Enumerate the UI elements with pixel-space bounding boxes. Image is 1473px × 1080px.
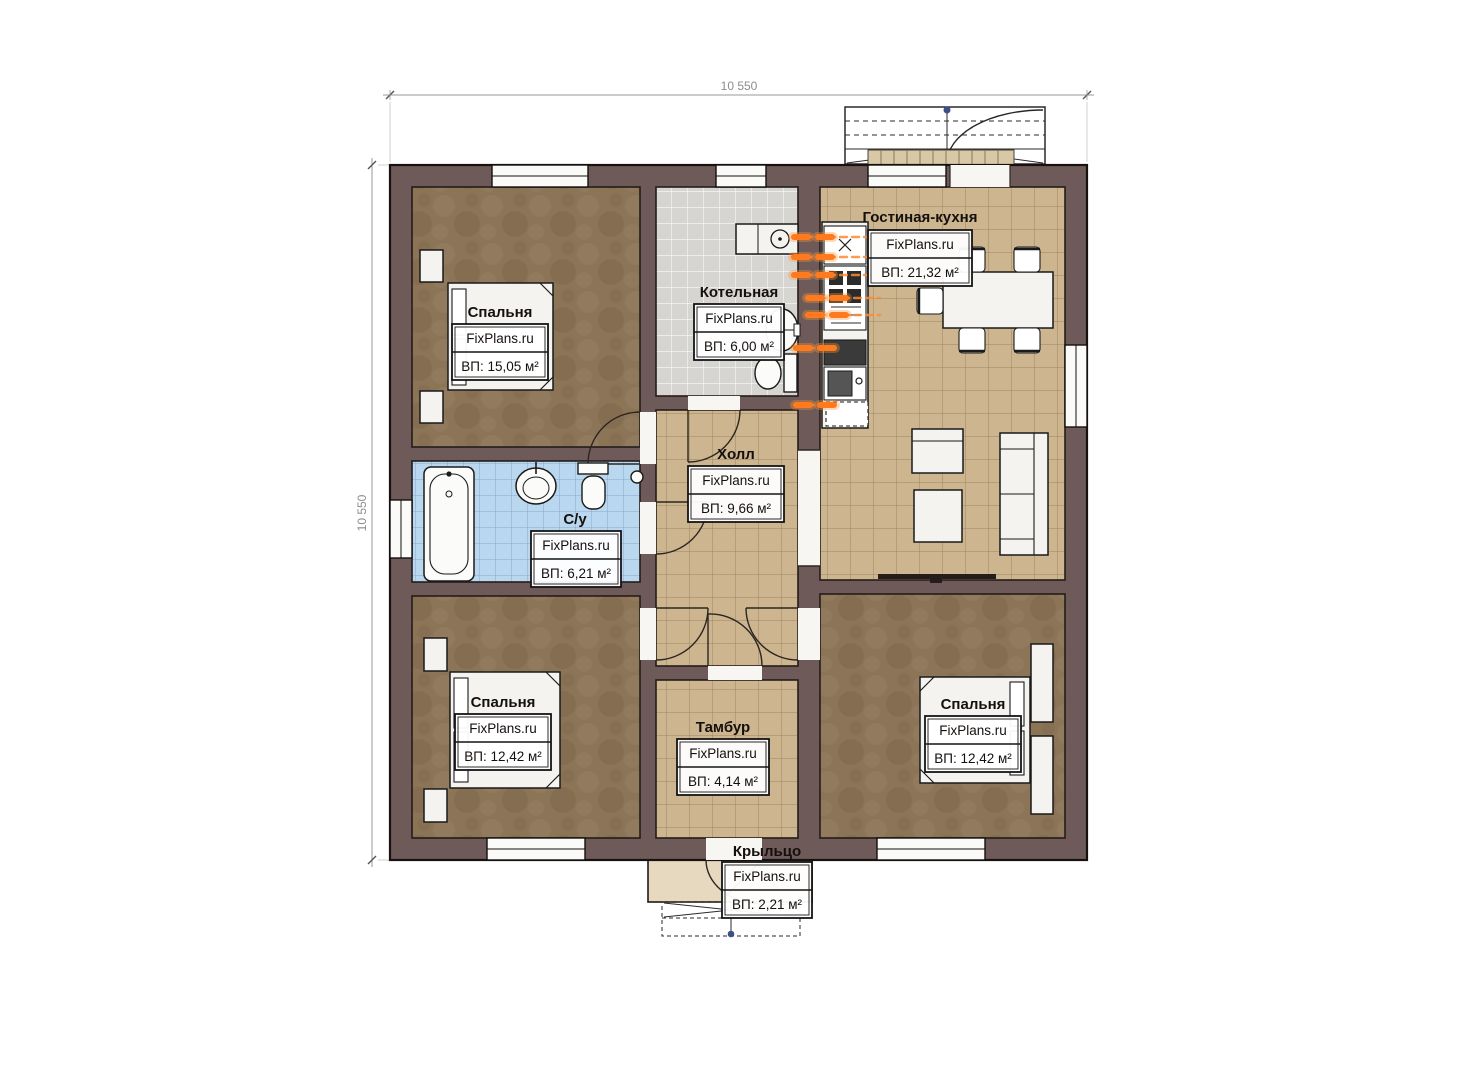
nightstand-icon (1031, 736, 1053, 814)
room-area: ВП: 4,14 м² (688, 774, 759, 789)
room-name: С/у (563, 511, 587, 528)
room-area: ВП: 6,21 м² (541, 566, 612, 581)
stair-direction-dot (944, 107, 951, 114)
watermark: FixPlans.ru (886, 237, 954, 252)
nightstand-icon (424, 789, 447, 822)
label-boiler-room: Котельная FixPlans.ru ВП: 6,00 м² (694, 284, 784, 360)
watermark: FixPlans.ru (733, 869, 801, 884)
chair-icon (1014, 328, 1040, 353)
nightstand-icon (420, 391, 443, 423)
window (492, 165, 588, 187)
watermark: FixPlans.ru (542, 538, 610, 553)
watermark: FixPlans.ru (469, 721, 537, 736)
back-porch-stairs (845, 107, 1045, 166)
nightstand-icon (420, 250, 443, 282)
dimension-top-label: 10 550 (721, 79, 758, 93)
room-area: ВП: 12,42 м² (464, 749, 542, 764)
door-back-entrance (950, 165, 1010, 187)
watermark: FixPlans.ru (689, 746, 757, 761)
watermark: FixPlans.ru (466, 331, 534, 346)
back-entry-steps (868, 150, 1014, 165)
nightstand-icon (1031, 644, 1053, 722)
stair-direction-dot (728, 931, 735, 938)
room-name: Спальня (468, 304, 533, 321)
watermark: FixPlans.ru (939, 723, 1007, 738)
window (877, 838, 985, 860)
window (390, 500, 412, 558)
nightstand-icon (424, 638, 447, 671)
window (487, 838, 585, 860)
dimension-left: 10 550 (355, 158, 390, 867)
towel-ring-icon (631, 471, 643, 483)
watermark: FixPlans.ru (705, 311, 773, 326)
room-area: ВП: 6,00 м² (704, 339, 775, 354)
label-porch: Крыльцо FixPlans.ru ВП: 2,21 м² (722, 843, 812, 918)
chair-icon (917, 288, 943, 314)
floor-plan-page: 10 550 10 550 (0, 0, 1473, 1080)
coffee-table-icon (914, 490, 962, 542)
opening-hall-living (798, 450, 820, 566)
window (868, 165, 946, 187)
watermark: FixPlans.ru (702, 473, 770, 488)
dimension-left-label: 10 550 (355, 494, 369, 531)
armchair-icon (912, 429, 963, 473)
toilet-icon (578, 463, 608, 509)
room-name: Тамбур (696, 719, 750, 736)
label-living-kitchen: Гостиная-кухня FixPlans.ru ВП: 21,32 м² (863, 209, 978, 286)
room-name: Крыльцо (733, 843, 801, 860)
room-area: ВП: 9,66 м² (701, 501, 772, 516)
window (716, 165, 766, 187)
room-name: Гостиная-кухня (863, 209, 978, 226)
kitchen-sink-icon (824, 367, 866, 400)
room-area: ВП: 2,21 м² (732, 897, 803, 912)
bathtub-icon (424, 467, 474, 581)
room-name: Холл (717, 446, 755, 463)
sofa-icon (1000, 433, 1048, 555)
room-area: ВП: 12,42 м² (934, 751, 1012, 766)
chair-icon (1014, 247, 1040, 272)
room-name: Спальня (941, 696, 1006, 713)
room-area: ВП: 15,05 м² (461, 359, 539, 374)
room-name: Котельная (700, 284, 779, 301)
room-area: ВП: 21,32 м² (881, 265, 959, 280)
window (1065, 345, 1087, 427)
room-name: Спальня (471, 694, 536, 711)
chair-icon (959, 328, 985, 353)
floor-plan-drawing: 10 550 10 550 (0, 0, 1473, 1080)
